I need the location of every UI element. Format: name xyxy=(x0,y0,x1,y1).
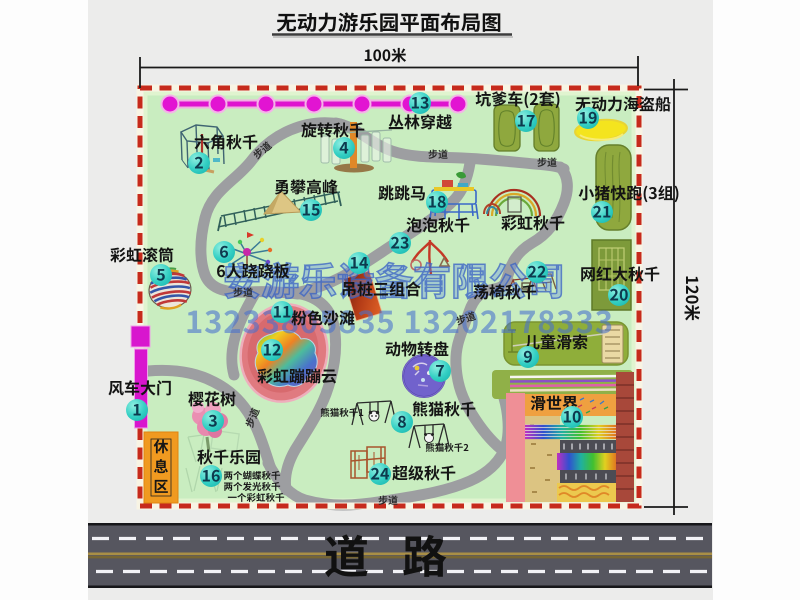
svg-text:勇攀高峰: 勇攀高峰 xyxy=(274,174,338,198)
svg-text:1: 1 xyxy=(132,397,141,421)
svg-text:彩虹蹦蹦云: 彩虹蹦蹦云 xyxy=(257,363,337,387)
svg-text:粉色沙滩: 粉色沙滩 xyxy=(291,305,355,329)
svg-text:息: 息 xyxy=(153,456,168,477)
svg-text:24: 24 xyxy=(371,461,390,485)
svg-text:17: 17 xyxy=(517,108,536,132)
svg-text:7: 7 xyxy=(435,358,444,382)
svg-text:樱花树: 樱花树 xyxy=(188,386,236,410)
svg-text:步道: 步道 xyxy=(537,154,557,169)
svg-text:熊猫秋千: 熊猫秋千 xyxy=(412,396,476,420)
svg-text:步道: 步道 xyxy=(378,492,398,507)
svg-text:区: 区 xyxy=(153,476,168,497)
svg-text:9: 9 xyxy=(523,344,532,368)
svg-text:旋转秋千: 旋转秋千 xyxy=(301,117,365,141)
svg-text:18: 18 xyxy=(428,189,447,213)
svg-text:10: 10 xyxy=(563,404,582,428)
svg-text:超级秋千: 超级秋千 xyxy=(392,460,456,484)
svg-text:一个彩虹秋千: 一个彩虹秋千 xyxy=(227,490,285,504)
svg-text:22: 22 xyxy=(528,259,547,283)
svg-text:步道: 步道 xyxy=(233,284,253,299)
svg-text:风车大门: 风车大门 xyxy=(108,375,172,399)
svg-text:泡泡秋千: 泡泡秋千 xyxy=(406,212,470,236)
svg-text:21: 21 xyxy=(593,199,612,223)
svg-text:坑爹车(2套): 坑爹车(2套) xyxy=(475,86,561,110)
svg-text:14: 14 xyxy=(350,250,369,274)
svg-text:100米: 100米 xyxy=(364,44,407,66)
svg-text:2: 2 xyxy=(194,150,203,174)
svg-text:120米: 120米 xyxy=(681,275,705,321)
svg-text:11: 11 xyxy=(273,299,292,323)
svg-text:跳跳马: 跳跳马 xyxy=(378,180,426,204)
svg-text:无动力游乐园平面布局图: 无动力游乐园平面布局图 xyxy=(276,6,502,36)
svg-text:16: 16 xyxy=(202,463,221,487)
svg-text:4: 4 xyxy=(339,135,348,159)
svg-text:8: 8 xyxy=(397,409,406,433)
svg-text:6: 6 xyxy=(219,239,228,263)
svg-text:13: 13 xyxy=(411,90,430,114)
svg-text:道路: 道路 xyxy=(324,521,480,586)
svg-text:23: 23 xyxy=(391,230,410,254)
svg-text:12: 12 xyxy=(263,337,282,361)
svg-text:15: 15 xyxy=(302,197,321,221)
svg-text:3: 3 xyxy=(208,408,217,432)
svg-text:彩虹秋千: 彩虹秋千 xyxy=(501,210,565,234)
svg-text:吊桩三组合: 吊桩三组合 xyxy=(341,276,421,300)
svg-text:5: 5 xyxy=(156,262,165,286)
svg-text:熊猫秋千2: 熊猫秋千2 xyxy=(425,440,469,454)
svg-text:熊猫秋千1: 熊猫秋千1 xyxy=(320,405,364,419)
svg-text:19: 19 xyxy=(579,105,598,129)
svg-text:20: 20 xyxy=(610,282,629,306)
svg-text:步道: 步道 xyxy=(428,146,448,161)
svg-text:荡椅秋千: 荡椅秋千 xyxy=(473,279,537,303)
svg-text:动物转盘: 动物转盘 xyxy=(385,336,449,360)
